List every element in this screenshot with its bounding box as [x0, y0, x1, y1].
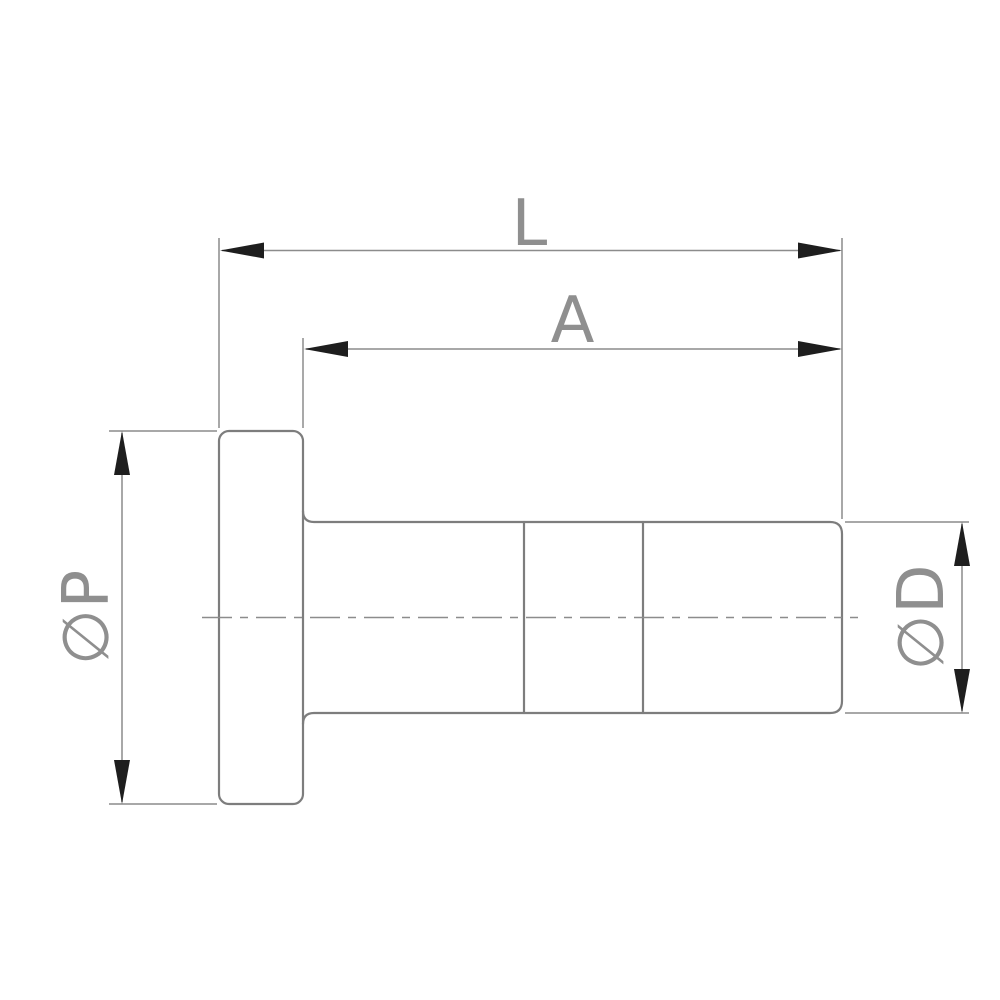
label-body-length: A: [551, 284, 596, 358]
arrow-D-down-icon: [954, 669, 970, 713]
label-body-diameter: ∅D: [885, 563, 959, 670]
dimension-lines: [122, 251, 962, 803]
arrow-A-right-icon: [798, 341, 842, 357]
label-overall-length: L: [512, 187, 549, 261]
arrow-L-right-icon: [798, 243, 842, 259]
arrow-P-down-icon: [114, 760, 130, 804]
label-flange-diameter: ∅P: [50, 569, 124, 665]
arrow-D-up-icon: [954, 522, 970, 566]
arrow-A-left-icon: [304, 341, 348, 357]
drawing-canvas: L A ∅P ∅D: [0, 0, 1000, 1000]
arrow-P-up-icon: [114, 431, 130, 475]
arrow-L-left-icon: [220, 243, 264, 259]
dimension-labels: L A ∅P ∅D: [50, 187, 959, 671]
